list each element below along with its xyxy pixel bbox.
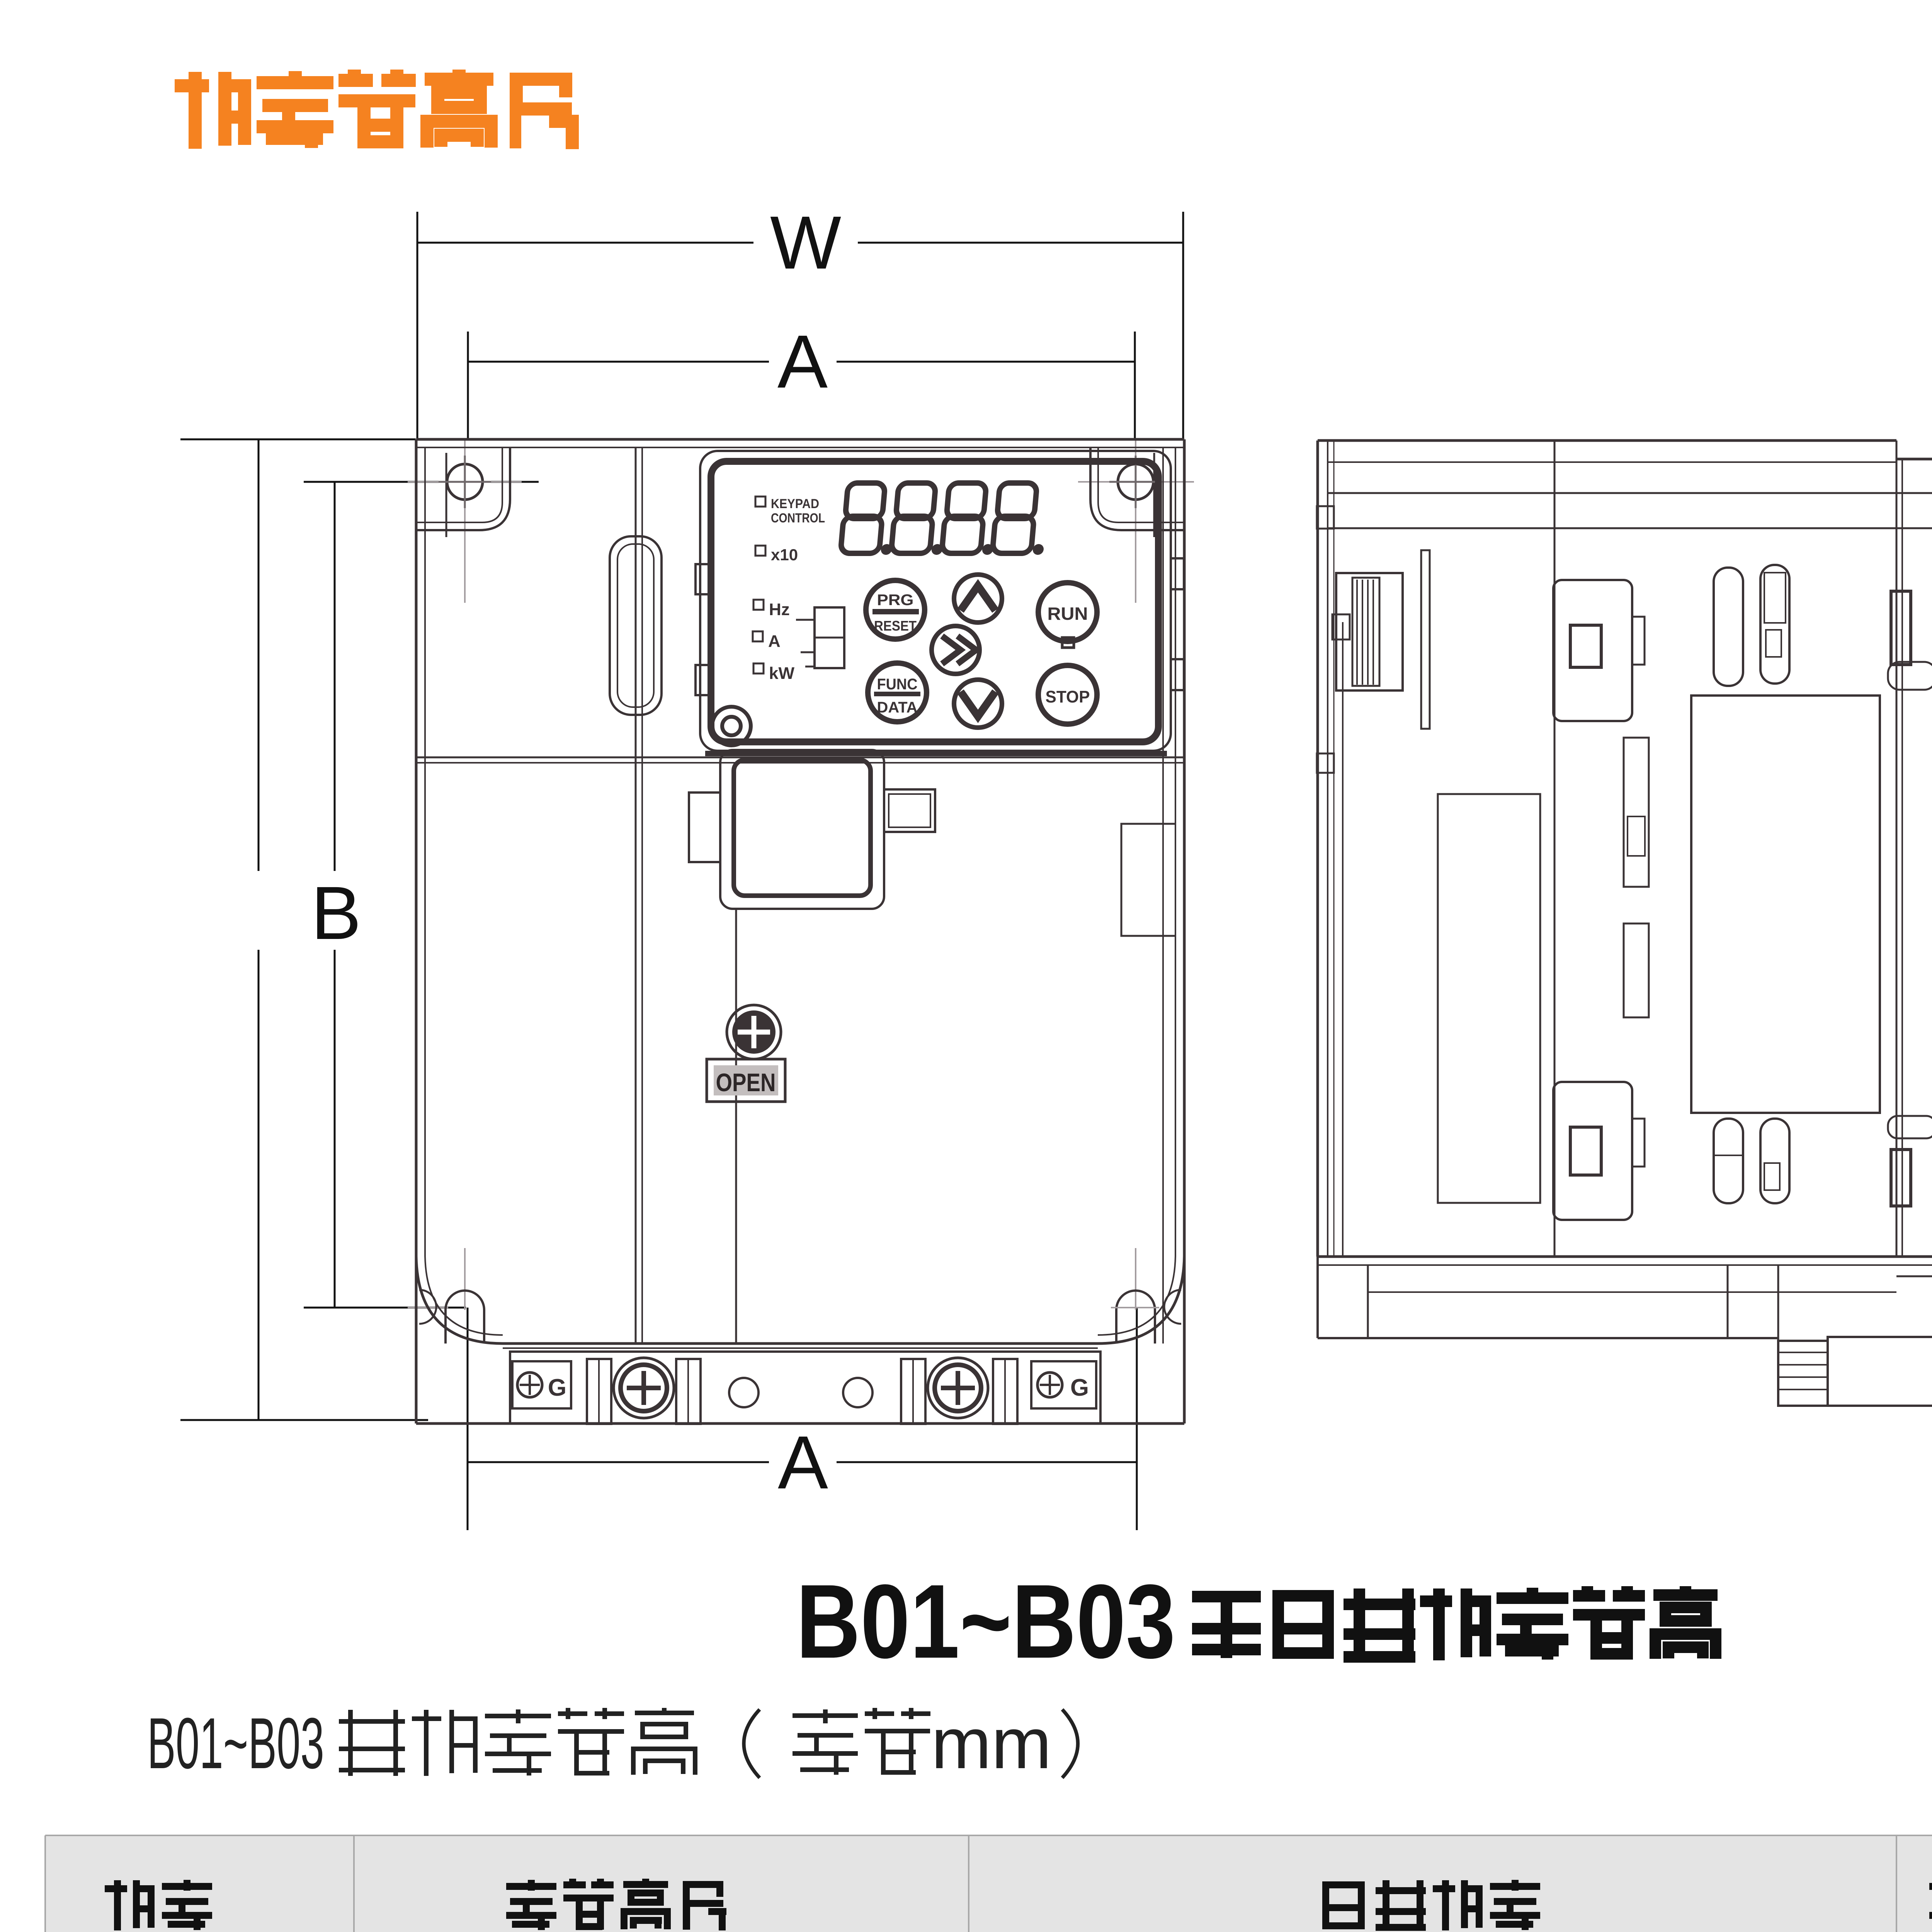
svg-text:FUNC: FUNC	[877, 676, 918, 693]
svg-text:OPEN: OPEN	[716, 1068, 776, 1097]
svg-text:RUN: RUN	[1048, 604, 1088, 624]
svg-text:G: G	[1070, 1374, 1089, 1401]
svg-text:x10: x10	[771, 546, 798, 564]
svg-text:A: A	[777, 320, 828, 404]
svg-text:A: A	[778, 1420, 828, 1505]
svg-text:B01~B03: B01~B03	[147, 1703, 324, 1784]
svg-text:W: W	[770, 201, 841, 285]
svg-text:mm: mm	[931, 1703, 1052, 1784]
svg-text:CONTROL: CONTROL	[771, 511, 825, 526]
svg-text:PRG: PRG	[877, 592, 914, 609]
svg-text:KEYPAD: KEYPAD	[771, 497, 819, 511]
svg-text:B01~B03: B01~B03	[796, 1563, 1175, 1680]
svg-text:DATA: DATA	[877, 699, 918, 716]
svg-text:RESET: RESET	[874, 618, 917, 634]
svg-text:STOP: STOP	[1046, 687, 1090, 706]
svg-text:G: G	[548, 1374, 566, 1401]
svg-text:B: B	[311, 871, 361, 955]
svg-text:Hz: Hz	[769, 600, 790, 619]
svg-text:A: A	[768, 632, 781, 651]
svg-text:kW: kW	[769, 664, 794, 683]
